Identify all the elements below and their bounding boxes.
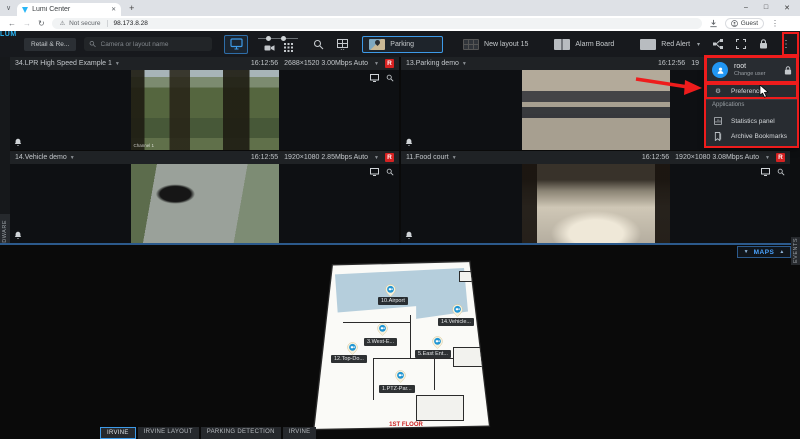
back-icon[interactable]: ←	[8, 19, 16, 28]
map-pin-label[interactable]: 10.Airport	[378, 297, 408, 305]
browser-tab[interactable]: Lumi Center ✕	[17, 3, 121, 16]
screen: ∨ Lumi Center ✕ + – □ ✕ ← → ↻ ⚠ Not secu…	[0, 0, 800, 439]
archive-bookmarks-icon	[713, 132, 723, 141]
change-user-label[interactable]: Change user	[734, 71, 778, 77]
gear-icon: ⚙	[713, 87, 723, 95]
share-nodes-icon[interactable]	[713, 39, 723, 49]
camera-tile-3[interactable]: 14.Vehicle demo ▼ 16:12:55 1920×1080 2.8…	[10, 151, 399, 243]
search-input[interactable]	[101, 41, 208, 48]
url-separator	[107, 20, 108, 27]
floor-map[interactable]: 1ST FLOOR 10.Airport 14.Vehicle... 3.Wes…	[312, 258, 492, 432]
camera-3-name[interactable]: 14.Vehicle demo	[15, 154, 67, 161]
browser-tab-title: Lumi Center	[32, 6, 107, 13]
map-hall-region	[335, 268, 468, 321]
camera-4-feed	[522, 164, 670, 243]
camera-4-video[interactable]	[401, 164, 790, 243]
profile-button[interactable]: Guest	[725, 18, 764, 29]
map-tab-parking-detection[interactable]: PARKING DETECTION	[201, 427, 281, 439]
monitor-icon	[230, 38, 243, 50]
camera-4-name[interactable]: 11.Food court	[406, 154, 449, 161]
fullscreen-icon[interactable]	[736, 39, 746, 49]
camera-1-stream-info: 2688×1520 3.00Mbps Auto	[284, 60, 368, 67]
camera-4-time: 16:12:56	[642, 154, 669, 161]
map-tab-irvine[interactable]: IRVINE	[100, 427, 136, 439]
chevron-down-icon[interactable]: ▼	[765, 155, 770, 161]
menu-item-archive-bookmarks[interactable]: Archive Bookmarks	[706, 129, 798, 143]
map-pin-label[interactable]: 12.Top-Do...	[331, 355, 367, 363]
lumi-favicon-icon	[22, 7, 28, 13]
camera-1-time: 16:12:56	[251, 60, 278, 67]
map-wall	[373, 358, 374, 400]
map-room	[416, 395, 464, 421]
archive-bookmarks-label: Archive Bookmarks	[731, 133, 787, 140]
events-label: EVENTS	[793, 238, 799, 263]
map-room	[459, 271, 479, 282]
person-icon	[716, 66, 725, 75]
slider-knob-right[interactable]	[281, 36, 286, 41]
camera-3-header: 14.Vehicle demo ▼ 16:12:55 1920×1080 2.8…	[10, 151, 399, 164]
camera-4-stream-info: 1920×1080 3.08Mbps Auto	[675, 154, 759, 161]
alarm-bell-icon[interactable]	[14, 138, 22, 146]
camera-1-watermark: Channel 1	[134, 143, 155, 148]
maps-label: MAPS	[754, 249, 775, 256]
applications-section-title: Applications	[712, 102, 744, 108]
camera-4-corner-icons	[761, 168, 785, 176]
more-tabs-chevron-icon[interactable]: ▾	[697, 41, 700, 48]
url-bar[interactable]: ⚠ Not secure 98.173.8.28	[52, 18, 702, 29]
map-wall	[410, 315, 411, 359]
digital-zoom-icon[interactable]	[386, 74, 394, 82]
layout-tab-label: New layout 15	[484, 41, 528, 48]
menu-divider	[706, 99, 798, 100]
parking-tab-thumbnail	[369, 39, 385, 50]
alarm-board-tab-thumbnail	[554, 39, 570, 50]
camera-tile-1[interactable]: 34.LPR High Speed Example 1 ▼ 16:12:56 2…	[10, 57, 399, 150]
camera-1-name[interactable]: 34.LPR High Speed Example 1	[15, 60, 112, 67]
camera-3-feed	[131, 164, 279, 243]
new-layout-tab-thumbnail	[463, 39, 479, 50]
alarm-bell-icon[interactable]	[14, 231, 22, 239]
lock-icon[interactable]	[759, 39, 768, 49]
camera-map-pin[interactable]	[452, 304, 463, 317]
record-badge: R	[776, 153, 785, 162]
chevron-down-icon[interactable]: ▼	[452, 155, 457, 161]
camera-tile-4[interactable]: 11.Food court ▼ 16:12:56 1920×1080 3.08M…	[401, 151, 790, 243]
stream-monitor-icon[interactable]	[761, 168, 770, 176]
lumi-logo: LUMI	[0, 31, 16, 38]
chevron-down-icon[interactable]: ▼	[374, 155, 379, 161]
browser-address-bar: ← → ↻ ⚠ Not secure 98.173.8.28 Guest ⋮	[0, 16, 800, 31]
monitor-view-button[interactable]	[224, 35, 248, 54]
zoom-search-icon[interactable]	[313, 39, 324, 50]
statistics-panel-icon	[713, 117, 723, 125]
user-menu-account[interactable]: root Change user	[706, 57, 798, 83]
tab-close-icon[interactable]: ✕	[111, 6, 116, 13]
user-avatar	[712, 62, 728, 78]
digital-zoom-icon[interactable]	[777, 168, 785, 176]
layout-tab-label: Red Alert	[661, 41, 690, 48]
statistics-panel-label: Statistics panel	[731, 118, 775, 125]
camera-2-name[interactable]: 13.Parking demo	[406, 60, 459, 67]
layout-tab-alarm-board[interactable]: Alarm Board	[548, 37, 620, 52]
camera-1-corner-icons	[370, 74, 394, 82]
menu-item-statistics-panel[interactable]: Statistics panel	[706, 114, 798, 128]
camera-4-header: 11.Food court ▼ 16:12:56 1920×1080 3.08M…	[401, 151, 790, 164]
camera-3-stream-info: 1920×1080 2.85Mbps Auto	[284, 154, 368, 161]
browser-menu-icon[interactable]: ⋮	[771, 19, 779, 28]
slider-knob-left[interactable]	[266, 36, 271, 41]
map-room	[453, 347, 483, 367]
camera-view-icon[interactable]	[264, 43, 275, 52]
window-close-button[interactable]: ✕	[784, 4, 790, 12]
digital-zoom-icon[interactable]	[386, 168, 394, 176]
layout-tab-red-alert[interactable]: Red Alert	[634, 37, 696, 52]
view-mode-group	[256, 36, 300, 52]
map-tab-bar: IRVINE IRVINE LAYOUT PARKING DETECTION I…	[100, 427, 316, 439]
map-pin-label[interactable]: 1.PTZ-Par...	[379, 385, 415, 393]
camera-3-time: 16:12:55	[251, 154, 278, 161]
chevron-down-icon[interactable]: ▼	[462, 61, 467, 67]
map-pin-label[interactable]: 14.Vehicle...	[438, 318, 474, 326]
chevron-down-icon[interactable]: ▼	[374, 61, 379, 67]
camera-1-header: 34.LPR High Speed Example 1 ▼ 16:12:56 2…	[10, 57, 399, 70]
window-maximize-button[interactable]: □	[764, 4, 768, 12]
map-wall	[434, 358, 435, 390]
user-menu: root Change user ⚙ Preferences Applicati…	[706, 57, 798, 147]
chevron-up-icon[interactable]: ▲	[779, 249, 784, 255]
reload-icon[interactable]: ↻	[38, 19, 45, 28]
layout-tab-bar: Parking New layout 15 Alarm Board Red Al…	[362, 36, 696, 53]
chevron-down-icon[interactable]: ▼	[70, 155, 75, 161]
grid-view-icon[interactable]	[284, 43, 293, 52]
search-icon	[89, 40, 96, 48]
camera-search[interactable]	[84, 37, 212, 51]
browser-tab-strip: ∨ Lumi Center ✕ + – □ ✕	[0, 0, 800, 16]
map-pin-label[interactable]: 5.East Ent...	[415, 350, 451, 358]
menu-item-preferences[interactable]: ⚙ Preferences	[706, 84, 798, 98]
map-tab-irvine-2[interactable]: IRVINE	[283, 427, 317, 439]
toolbar-right-icons: ▾ ⋮	[697, 39, 800, 50]
record-badge: R	[385, 59, 394, 68]
preferences-label: Preferences	[731, 88, 766, 95]
maps-toggle-bar[interactable]: ▼ MAPS ▲	[737, 246, 791, 258]
camera-2-feed	[522, 70, 670, 150]
window-controls: – □ ✕	[744, 4, 800, 12]
camera-1-feed: Channel 1	[131, 70, 279, 150]
camera-1-video[interactable]: Channel 1	[10, 70, 399, 150]
new-tab-button[interactable]: +	[129, 3, 134, 13]
lock-session-icon[interactable]	[784, 66, 792, 75]
profile-label: Guest	[741, 20, 758, 27]
app-toolbar: LUMI Retail & Re...	[0, 31, 800, 57]
server-group-button[interactable]: Retail & Re...	[24, 38, 76, 51]
url-text: 98.173.8.28	[114, 20, 148, 27]
size-slider[interactable]	[256, 36, 300, 41]
layout-tab-parking[interactable]: Parking	[362, 36, 443, 53]
alarm-bell-icon[interactable]	[405, 231, 413, 239]
stream-monitor-icon[interactable]	[370, 168, 379, 176]
camera-2-time: 16:12:56	[658, 60, 685, 67]
stream-monitor-icon[interactable]	[370, 74, 379, 82]
window-minimize-button[interactable]: –	[744, 4, 748, 12]
tab-search-chevron-icon[interactable]: ∨	[6, 4, 11, 12]
map-floor: 1ST FLOOR	[313, 259, 491, 431]
layout-tab-label: Parking	[390, 41, 414, 48]
chevron-down-icon[interactable]: ▼	[744, 249, 749, 255]
layout-tab-label: Alarm Board	[575, 41, 614, 48]
red-alert-tab-thumbnail	[640, 39, 656, 50]
alarm-bell-icon[interactable]	[405, 138, 413, 146]
map-pin-label[interactable]: 3.West-E...	[364, 338, 397, 346]
camera-map-pin[interactable]	[347, 342, 358, 355]
layout-grid-icon[interactable]	[337, 39, 348, 50]
events-panel-tab-front[interactable]: EVENTS	[791, 237, 800, 265]
security-label: Not secure	[69, 20, 100, 27]
user-name: root	[734, 63, 778, 70]
map-tab-irvine-layout[interactable]: IRVINE LAYOUT	[138, 427, 199, 439]
not-secure-icon: ⚠	[60, 20, 65, 27]
camera-map-pin[interactable]	[432, 336, 443, 349]
camera-map-pin[interactable]	[385, 284, 396, 297]
camera-3-video[interactable]	[10, 164, 399, 243]
app-menu-kebab-icon[interactable]: ⋮	[781, 39, 791, 50]
record-badge: R	[385, 153, 394, 162]
chevron-down-icon[interactable]: ▼	[115, 61, 120, 67]
camera-2-stream-info: 19	[691, 60, 699, 67]
camera-map-pin[interactable]	[377, 323, 388, 336]
camera-map-pin[interactable]	[395, 370, 406, 383]
camera-3-corner-icons	[370, 168, 394, 176]
layout-tab-new-layout-15[interactable]: New layout 15	[457, 37, 534, 52]
person-icon	[731, 20, 738, 27]
forward-icon[interactable]: →	[23, 19, 31, 28]
download-icon[interactable]	[709, 19, 718, 28]
